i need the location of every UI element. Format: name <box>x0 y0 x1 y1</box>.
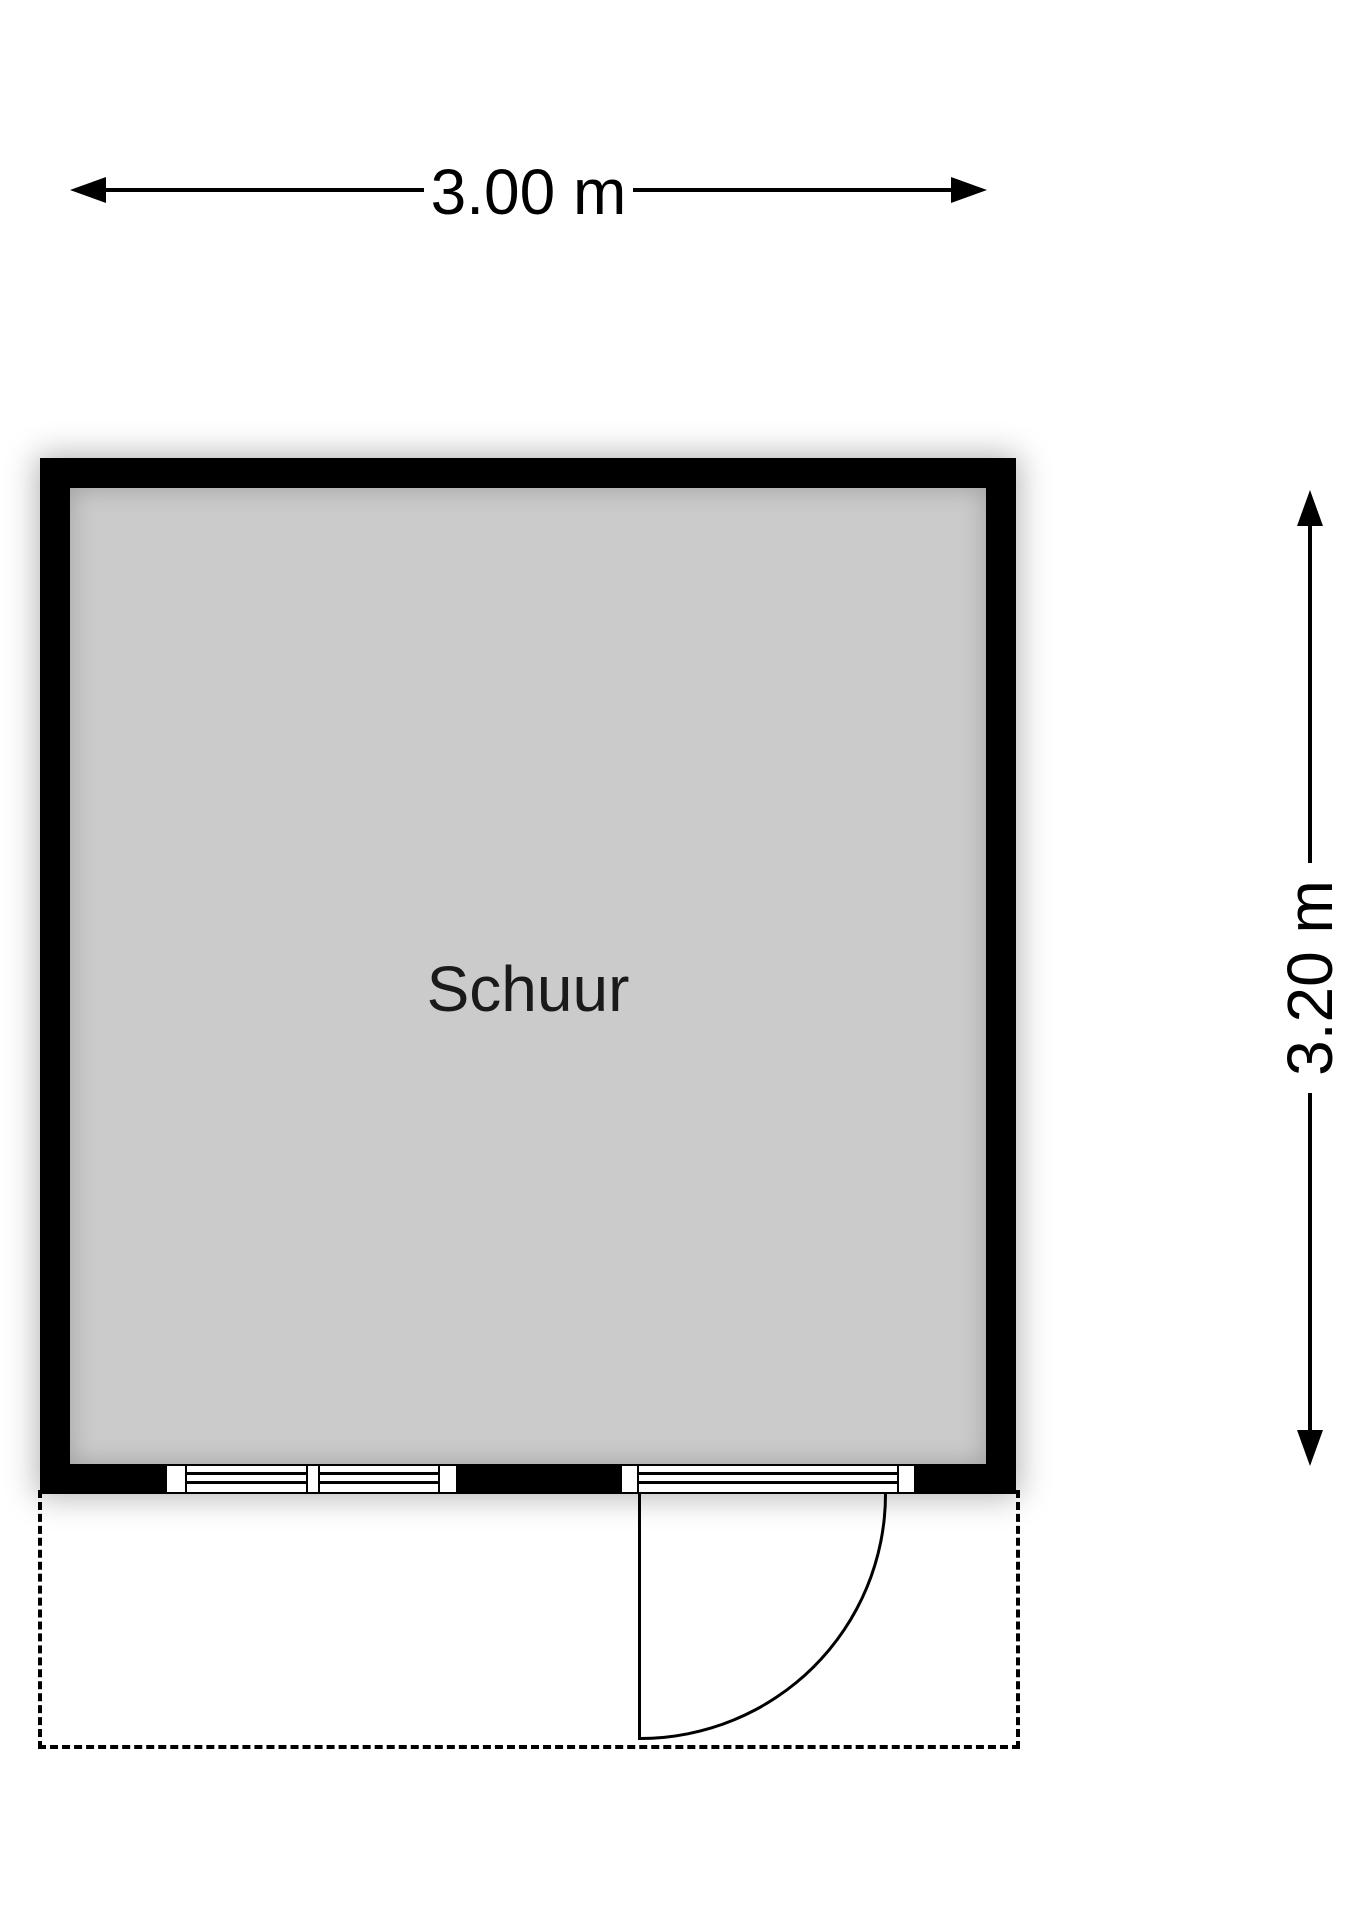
height-dimension-label: 3.20 m <box>1276 858 1344 1098</box>
window-frame-post <box>308 1466 318 1492</box>
height-dimension-line-bottom <box>1308 1093 1312 1432</box>
room-schuur: Schuur <box>40 458 1016 1494</box>
window-frame-post <box>167 1466 185 1492</box>
door-frame-post <box>622 1466 637 1492</box>
dimension-arrow-right-icon <box>951 177 987 203</box>
room-floor: Schuur <box>70 488 986 1464</box>
dimension-arrow-up-icon <box>1297 490 1323 526</box>
door-frame-post <box>899 1466 914 1492</box>
dimension-arrow-down-icon <box>1297 1430 1323 1466</box>
width-dimension-label: 3.00 m <box>424 158 633 226</box>
width-dimension-line-right <box>633 188 957 192</box>
room-label: Schuur <box>70 955 986 1023</box>
floorplan-page: { "plan": { "room": { "label": "Schuur" … <box>0 0 1358 1920</box>
window-pane <box>185 1466 308 1492</box>
window-frame-post <box>440 1466 456 1492</box>
window-double <box>165 1464 458 1494</box>
window-pane <box>318 1466 441 1492</box>
door-panel <box>637 1466 899 1492</box>
door-opening <box>620 1464 916 1494</box>
height-dimension-line-top <box>1308 524 1312 863</box>
width-dimension-line-left <box>98 188 424 192</box>
